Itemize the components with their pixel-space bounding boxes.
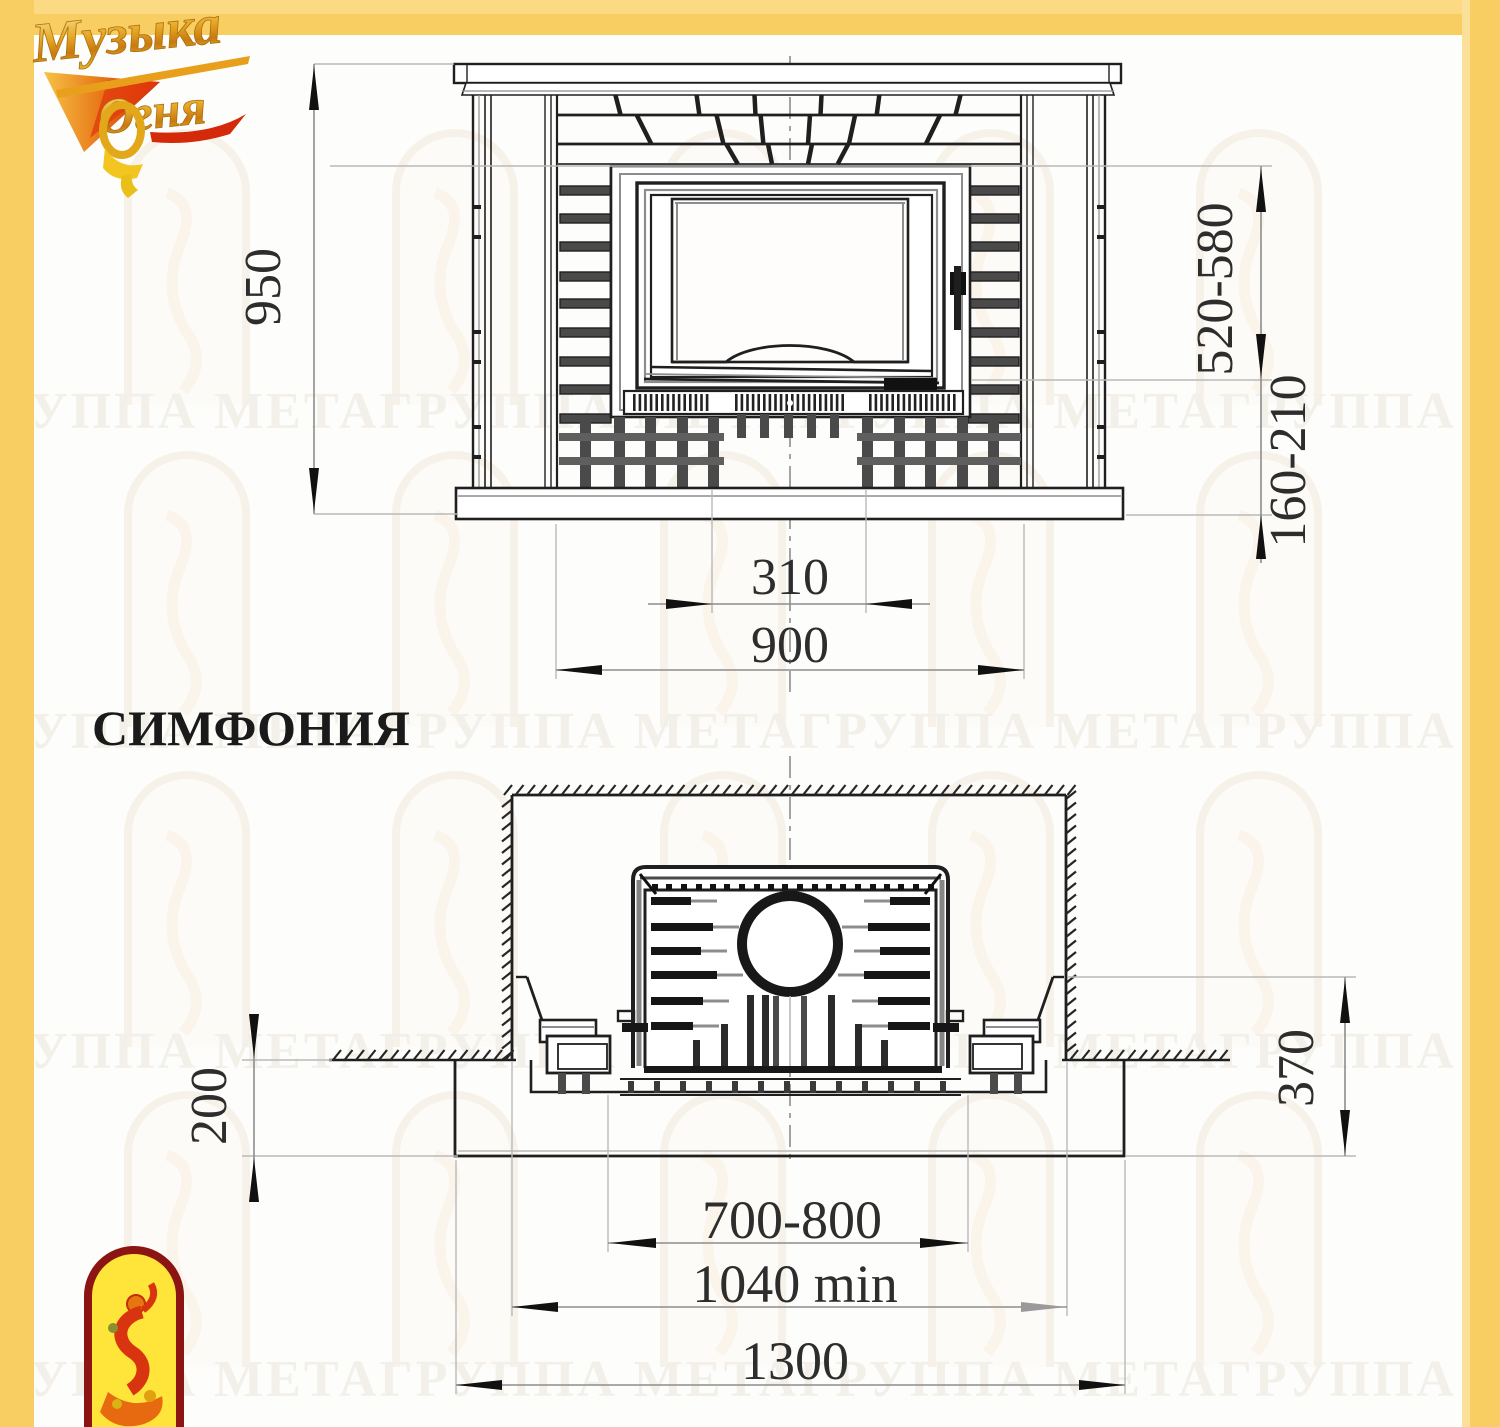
svg-text:370: 370 [1268,1029,1325,1107]
svg-text:520-580: 520-580 [1187,202,1244,375]
svg-text:1300: 1300 [741,1331,849,1391]
svg-text:200: 200 [181,1067,238,1145]
svg-text:900: 900 [751,617,829,674]
svg-text:700-800: 700-800 [702,1190,882,1250]
svg-text:СИМФОНИЯ: СИМФОНИЯ [92,700,410,756]
svg-text:160-210: 160-210 [1260,374,1317,547]
svg-text:310: 310 [751,549,829,606]
svg-text:950: 950 [235,248,292,326]
svg-text:1040 min: 1040 min [692,1254,898,1314]
